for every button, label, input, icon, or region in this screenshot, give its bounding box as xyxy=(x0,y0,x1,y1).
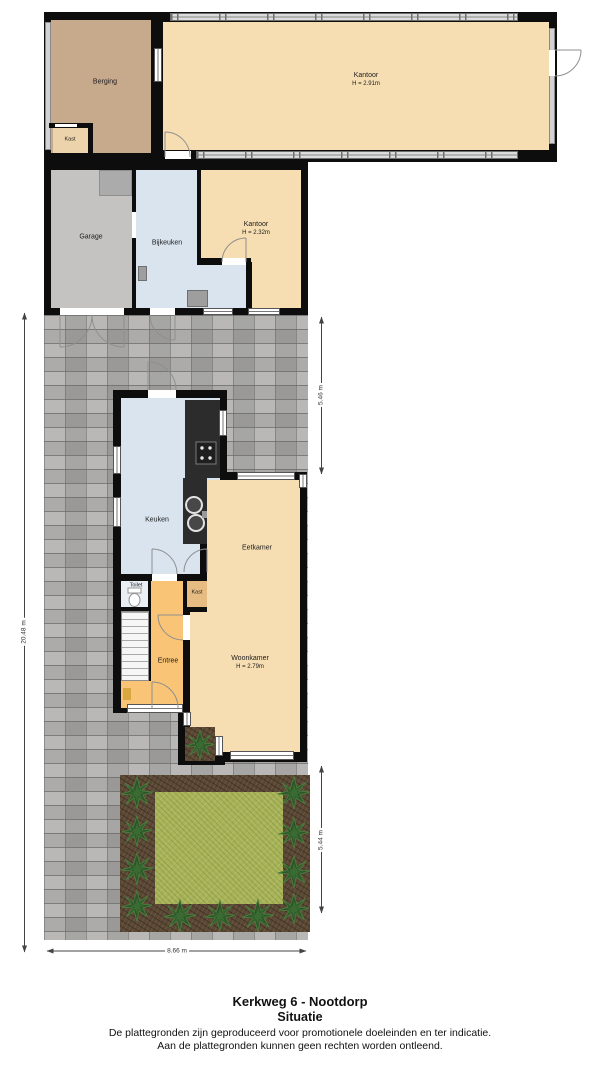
room-name: Garage xyxy=(79,234,102,243)
eetkamer-window-top xyxy=(237,472,295,480)
room-label-kantoor-klein: Kantoor H = 2.32m xyxy=(242,221,270,237)
room-label-keuken: Keuken xyxy=(145,517,169,526)
room-name: Kantoor xyxy=(352,72,380,81)
boiler-icon xyxy=(138,266,147,281)
room-name: Toilet xyxy=(130,583,143,590)
dimension-label-right-bottom: 5.44 m xyxy=(318,828,325,852)
bay-window-left xyxy=(183,712,191,726)
dimension-label-left: 20.48 m xyxy=(21,618,28,646)
room-label-kast-hal: Kast xyxy=(191,590,202,597)
stairs xyxy=(121,611,149,681)
room-name: Entree xyxy=(158,658,179,667)
room-label-kast-berging: Kast xyxy=(64,137,75,144)
kitchen-counter-upper xyxy=(185,400,220,478)
kantoor-groot-window-strip-bottom xyxy=(196,151,518,159)
room-name: Berging xyxy=(93,79,117,88)
room-label-garage: Garage xyxy=(79,234,102,243)
kast-berging-wall-right xyxy=(88,123,93,155)
plan-view-subtitle: Situatie xyxy=(0,1010,600,1024)
floorplan-canvas: Berging Kast Kantoor H = 2.91m Garage Bi… xyxy=(0,0,600,1066)
garage-door-opening xyxy=(60,308,124,315)
room-name: Bijkeuken xyxy=(152,240,182,249)
disclaimer-line-2: Aan de plattegronden kunnen geen rechten… xyxy=(0,1040,600,1052)
room-name: Keuken xyxy=(145,517,169,526)
kantoor-klein-window-2 xyxy=(248,308,280,315)
entree-doormat xyxy=(123,688,131,700)
kantoor-bijkeuken-door-opening xyxy=(165,151,191,159)
garage-workbench xyxy=(99,170,132,196)
room-label-toilet: Toilet xyxy=(130,583,143,590)
berging-kantoor-window xyxy=(154,48,162,82)
room-height: H = 2.79m xyxy=(231,664,269,672)
disclaimer-line-1: De plattegronden zijn geproduceerd voor … xyxy=(0,1027,600,1039)
room-name: Kantoor xyxy=(242,221,270,230)
bay-planter-soil xyxy=(185,727,215,761)
room-woonkamer-floor xyxy=(207,480,300,752)
bay-window-right xyxy=(215,736,223,756)
washer-icon xyxy=(187,290,208,307)
kantoor-klein-window-1 xyxy=(203,308,233,315)
kantoor-groot-window-strip-top xyxy=(170,13,518,21)
kitchen-counter-lower xyxy=(183,478,207,544)
kantoor-groot-door-opening xyxy=(549,50,555,76)
bijkeuken-extension-wall-right xyxy=(246,262,252,308)
room-name: Kast xyxy=(64,137,75,144)
room-label-berging: Berging xyxy=(93,79,117,88)
bijkeuken-door-opening xyxy=(150,308,175,315)
room-label-entree: Entree xyxy=(158,658,179,667)
entree-window-bottom xyxy=(127,704,183,713)
garden-lawn xyxy=(155,792,283,904)
room-name: Kast xyxy=(191,590,202,597)
room-name: Woonkamer xyxy=(231,655,269,664)
room-label-kantoor-groot: Kantoor H = 2.91m xyxy=(352,72,380,88)
room-label-woonkamer: Woonkamer H = 2.79m xyxy=(231,655,269,671)
keuken-window-left-2 xyxy=(113,497,121,527)
woonkamer-window-bottom xyxy=(230,751,294,760)
room-height: H = 2.32m xyxy=(242,230,270,238)
entree-keuken-door-opening xyxy=(152,574,177,581)
room-label-eetkamer: Eetkamer xyxy=(242,545,272,554)
kantoor-klein-interior-door-opening xyxy=(222,258,246,265)
room-entree-floor xyxy=(151,581,183,708)
room-height: H = 2.91m xyxy=(352,81,380,89)
kantoor-groot-wall-right xyxy=(549,28,555,144)
garage-bijkeuken-opening xyxy=(132,212,136,238)
entree-woonkamer-door-opening xyxy=(183,615,190,640)
kast-berging-window xyxy=(55,124,77,127)
keuken-exterior-door-opening xyxy=(148,390,176,398)
keuken-eetkamer-wall-stub xyxy=(200,544,207,574)
plan-address-title: Kerkweg 6 - Nootdorp xyxy=(0,994,600,1009)
room-label-bijkeuken: Bijkeuken xyxy=(152,240,182,249)
dimension-label-right-top: 5.46 m xyxy=(318,383,325,407)
keuken-window-right xyxy=(219,410,227,436)
room-name: Eetkamer xyxy=(242,545,272,554)
keuken-window-left-1 xyxy=(113,446,121,474)
dimension-label-bottom: 8.66 m xyxy=(165,948,189,955)
eetkamer-window-right xyxy=(299,474,307,488)
berging-window-wall xyxy=(45,22,51,150)
